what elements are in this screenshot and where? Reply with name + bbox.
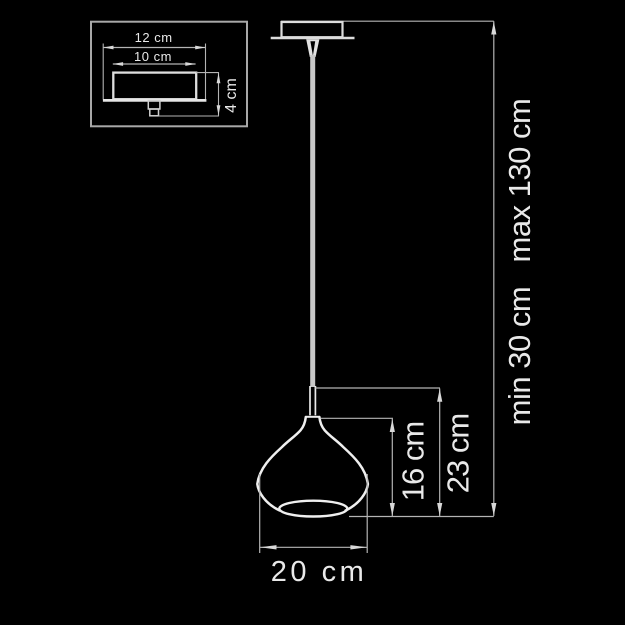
svg-text:min 30 cm max 130 cm: min 30 cm max 130 cm: [502, 99, 537, 426]
svg-text:4 cm: 4 cm: [223, 78, 240, 113]
svg-text:10 cm: 10 cm: [134, 49, 172, 64]
svg-text:12 cm: 12 cm: [135, 30, 173, 45]
svg-text:23 cm: 23 cm: [441, 414, 476, 493]
svg-text:20 cm: 20 cm: [271, 556, 367, 588]
svg-text:16 cm: 16 cm: [396, 422, 431, 501]
